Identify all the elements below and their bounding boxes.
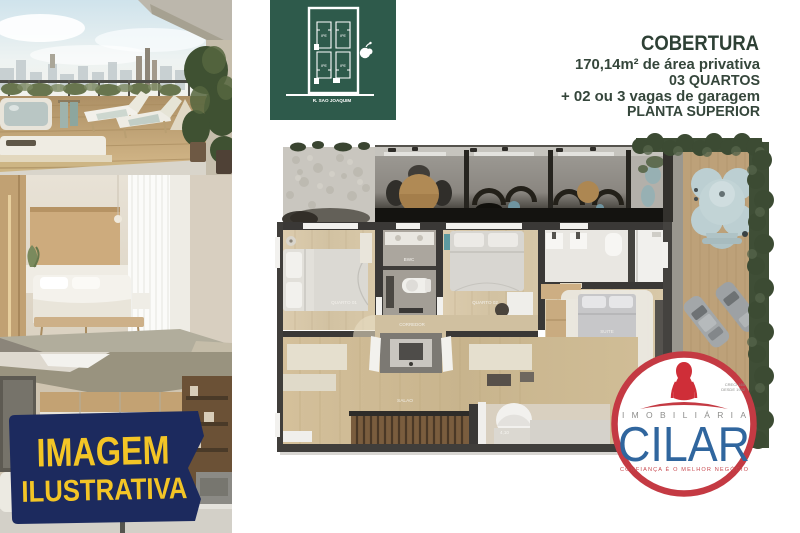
svg-text:QUARTO 01: QUARTO 01	[331, 300, 357, 305]
svg-text:CORREDOR: CORREDOR	[399, 322, 425, 327]
svg-text:4,10: 4,10	[500, 430, 509, 435]
svg-text:DESDE 1962: DESDE 1962	[721, 387, 746, 392]
svg-text:SALAO: SALAO	[397, 398, 413, 404]
svg-text:BWC: BWC	[404, 257, 415, 262]
svg-text:SUITE: SUITE	[600, 329, 614, 334]
svg-text:CILAR: CILAR	[618, 418, 750, 472]
svg-text:QUARTO 02: QUARTO 02	[472, 300, 498, 305]
